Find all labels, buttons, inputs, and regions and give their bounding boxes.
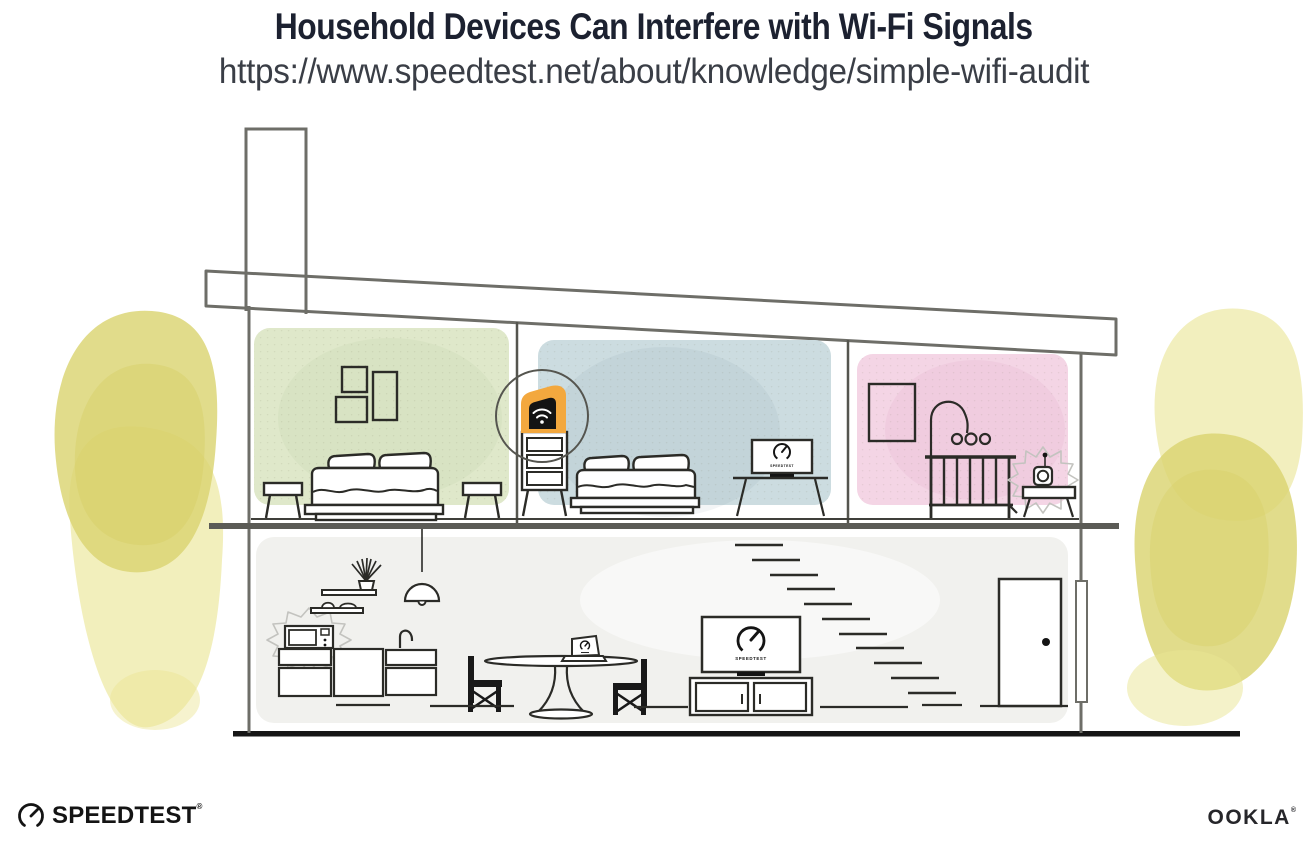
speedtest-gauge-icon <box>16 801 46 831</box>
downspout <box>1076 581 1087 702</box>
foliage-right <box>1127 308 1303 726</box>
monitor-screen-label: SPEEDTEST <box>770 464 794 468</box>
speedtest-registered-mark: ® <box>197 802 203 811</box>
ookla-wordmark: OOKLA <box>1208 806 1291 829</box>
ookla-logo: OOKLA® <box>1208 806 1297 830</box>
ground-line <box>233 731 1240 737</box>
bed-middle <box>571 455 699 513</box>
speedtest-wordmark: SPEEDTEST® <box>52 802 203 830</box>
door <box>999 579 1061 706</box>
ookla-registered-mark: ® <box>1291 807 1296 814</box>
tv-screen-label: SPEEDTEST <box>735 656 767 661</box>
kitchen-cabinets <box>279 649 436 696</box>
tv-console <box>690 678 812 715</box>
door-knob <box>1042 638 1050 646</box>
floor-divider <box>209 523 1119 529</box>
wifi-router-icon <box>521 385 566 433</box>
tv: SPEEDTEST <box>702 617 800 676</box>
house-illustration: SPEEDTEST <box>0 0 1308 861</box>
foliage-left <box>55 311 224 730</box>
infographic-canvas: Household Devices Can Interfere with Wi-… <box>0 0 1308 861</box>
speedtest-logo: SPEEDTEST® <box>16 801 203 831</box>
microwave <box>285 626 333 648</box>
